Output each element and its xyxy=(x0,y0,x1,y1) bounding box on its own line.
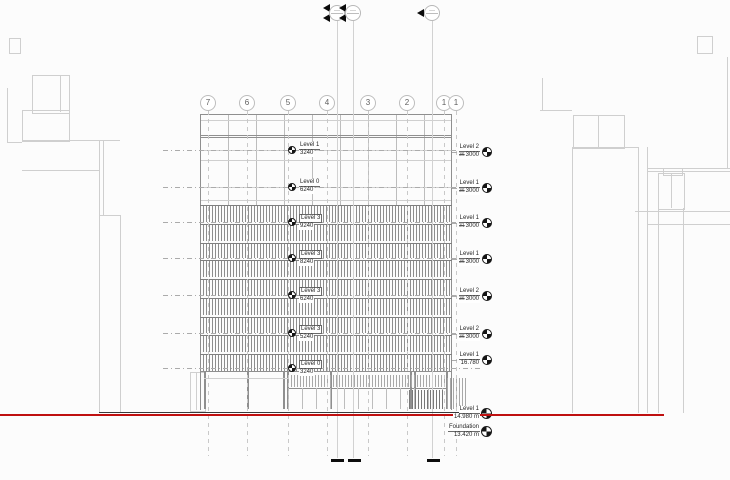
ground-line xyxy=(99,412,470,413)
grid-bubble-4[interactable]: 4 xyxy=(319,95,335,111)
level-elevation: 363000 xyxy=(458,296,480,303)
level-label[interactable]: Level 114.980 m xyxy=(444,406,480,421)
grid-line xyxy=(247,111,248,456)
level-name: Level 2 xyxy=(459,326,480,334)
level-elevation: 8240 xyxy=(299,259,314,266)
level-line xyxy=(163,150,480,151)
level-marker-icon[interactable] xyxy=(288,183,296,191)
side-louver-screen xyxy=(447,378,468,409)
level-elevation: 363000 xyxy=(458,259,480,266)
level-name: Level 1 xyxy=(459,180,480,188)
level-marker-icon[interactable] xyxy=(482,147,492,157)
level-name: Level 1 xyxy=(459,406,480,414)
level-elevation: 13.420 m xyxy=(453,432,480,439)
louver-band xyxy=(200,260,452,277)
level-marker-icon[interactable] xyxy=(482,329,492,339)
level-marker-icon[interactable] xyxy=(288,291,296,299)
grid-bubble-6[interactable]: 6 xyxy=(239,95,255,111)
elevation-drawing: 76543211 Level 13240Level 06240Level 392… xyxy=(0,0,730,480)
louver-band xyxy=(200,243,452,258)
level-name: Level 3 xyxy=(299,214,322,223)
level-label[interactable]: Level 38240 xyxy=(299,250,322,266)
level-name: Level 1 xyxy=(459,352,480,360)
level-name: Level 3 xyxy=(299,325,322,334)
level-marker-icon[interactable] xyxy=(482,254,492,264)
level-label[interactable]: Level 06240 xyxy=(299,179,320,194)
level-label[interactable]: Level 36240 xyxy=(299,287,322,303)
grid-bubble-5[interactable]: 5 xyxy=(280,95,296,111)
section-line xyxy=(432,21,433,458)
section-line-end-dash xyxy=(348,459,361,462)
storefront-transom-hatch xyxy=(288,375,446,387)
level-marker-icon[interactable] xyxy=(288,329,296,337)
level-marker-icon[interactable] xyxy=(482,291,492,301)
level-old-elevation: 36 xyxy=(459,334,465,340)
level-elevation: 363000 xyxy=(458,334,480,341)
level-elevation: 313000 xyxy=(458,223,480,230)
section-marker[interactable] xyxy=(345,5,361,21)
site-ground-line-red xyxy=(0,414,664,416)
level-name: Level 1 xyxy=(459,215,480,223)
level-name: Level 3 xyxy=(299,250,322,259)
level-marker-icon[interactable] xyxy=(481,426,492,437)
level-label[interactable]: Level 03240 xyxy=(299,360,322,376)
level-label[interactable]: Level 2363000 xyxy=(446,326,480,341)
level-old-elevation: 36 xyxy=(459,152,465,158)
section-line xyxy=(353,21,354,458)
level-label[interactable]: Level 1363000 xyxy=(446,180,480,195)
level-name: Level 1 xyxy=(299,142,320,150)
level-elevation: 6240 xyxy=(299,187,314,194)
grid-line xyxy=(208,111,209,456)
level-label[interactable]: Level 35240 xyxy=(299,325,322,341)
level-elevation: 363000 xyxy=(458,188,480,195)
level-label[interactable]: Level 2363000 xyxy=(446,144,480,159)
louver-band xyxy=(200,279,452,296)
section-line-end-dash xyxy=(331,459,344,462)
section-arrow-icon xyxy=(417,9,424,17)
section-line xyxy=(337,21,338,458)
level-label[interactable]: Level 13240 xyxy=(299,142,320,157)
level-label[interactable]: Level 116.780 xyxy=(446,352,480,367)
level-old-elevation: 36 xyxy=(459,296,465,302)
section-line-end-dash xyxy=(427,459,440,462)
grid-line xyxy=(456,111,457,456)
grid-bubble-7[interactable]: 7 xyxy=(200,95,216,111)
level-old-elevation: 36 xyxy=(459,259,465,265)
level-elevation: 3240 xyxy=(299,369,314,376)
grid-line xyxy=(368,111,369,456)
level-name: Level 0 xyxy=(299,360,322,369)
level-name: Level 3 xyxy=(299,287,322,296)
level-elevation: 363000 xyxy=(458,152,480,159)
level-marker-icon[interactable] xyxy=(482,183,492,193)
grid-line xyxy=(288,111,289,456)
level-marker-icon[interactable] xyxy=(288,218,296,226)
grid-line xyxy=(444,111,445,456)
grid-bubble-1[interactable]: 1 xyxy=(448,95,464,111)
level-elevation: 5240 xyxy=(299,334,314,341)
grid-line xyxy=(407,111,408,456)
level-label[interactable]: Level 2363000 xyxy=(446,288,480,303)
level-marker-icon[interactable] xyxy=(288,254,296,262)
level-label[interactable]: Level 39240 xyxy=(299,214,322,230)
grid-bubble-3[interactable]: 3 xyxy=(360,95,376,111)
level-marker-icon[interactable] xyxy=(288,364,296,372)
louver-band xyxy=(200,317,452,333)
louver-band xyxy=(200,298,452,315)
level-elevation: 3240 xyxy=(299,150,314,157)
level-label[interactable]: Level 1363000 xyxy=(446,251,480,266)
louver-band xyxy=(200,335,452,352)
level-name: Level 1 xyxy=(459,251,480,259)
level-marker-icon[interactable] xyxy=(482,355,492,365)
level-elevation: 14.980 m xyxy=(453,414,480,421)
level-elevation: 6240 xyxy=(299,296,314,303)
level-elevation: 9240 xyxy=(299,223,314,230)
level-old-elevation: 36 xyxy=(459,188,465,194)
level-name: Level 0 xyxy=(299,179,320,187)
level-old-elevation: 31 xyxy=(459,223,465,229)
level-elevation: 16.780 xyxy=(460,360,480,367)
level-line xyxy=(163,187,480,188)
level-name: Level 2 xyxy=(459,288,480,296)
level-label[interactable]: Level 1313000 xyxy=(446,215,480,230)
section-marker[interactable] xyxy=(424,5,440,21)
louver-band xyxy=(200,354,452,372)
louver-band xyxy=(200,205,452,222)
grid-bubble-2[interactable]: 2 xyxy=(399,95,415,111)
level-name: Foundation xyxy=(448,424,480,432)
louver-screen xyxy=(409,390,445,409)
level-marker-icon[interactable] xyxy=(288,146,296,154)
level-label[interactable]: Foundation13.420 m xyxy=(444,424,480,439)
louver-band xyxy=(200,224,452,241)
level-marker-icon[interactable] xyxy=(482,218,492,228)
level-name: Level 2 xyxy=(459,144,480,152)
grid-line xyxy=(327,111,328,456)
